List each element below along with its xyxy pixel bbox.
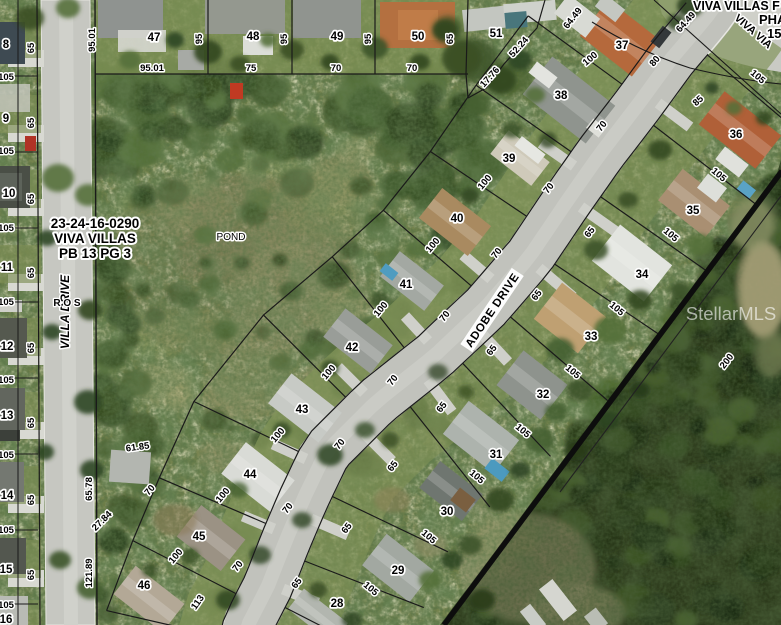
svg-text:15: 15 [0,564,13,576]
svg-text:13: 13 [1,410,14,422]
svg-text:105: 105 [0,223,15,234]
svg-text:VIVA VILLAS: VIVA VILLAS [54,231,136,246]
svg-text:95.01: 95.01 [140,63,164,74]
svg-text:34: 34 [636,269,649,281]
svg-text:10: 10 [3,188,16,200]
svg-text:65: 65 [26,267,37,278]
svg-text:36: 36 [730,129,743,141]
svg-text:48: 48 [247,31,260,43]
svg-text:95.01: 95.01 [87,27,98,51]
svg-text:105: 105 [0,450,15,461]
svg-text:31: 31 [490,449,503,461]
svg-text:105: 105 [0,525,15,536]
svg-text:PHA: PHA [759,12,781,27]
svg-text:9: 9 [3,113,9,125]
svg-text:VILLA DRIVE: VILLA DRIVE [58,274,72,349]
svg-text:70: 70 [331,63,342,74]
svg-text:45: 45 [193,531,206,543]
svg-text:65: 65 [445,33,456,44]
svg-text:39: 39 [503,153,516,165]
svg-text:70: 70 [407,63,418,74]
svg-text:105: 105 [0,375,15,386]
svg-text:44: 44 [244,469,257,481]
svg-text:38: 38 [555,90,568,102]
svg-text:65: 65 [26,342,37,353]
svg-text:33: 33 [585,331,598,343]
svg-text:8: 8 [3,39,10,51]
svg-text:32: 32 [537,389,550,401]
svg-text:43: 43 [296,404,309,416]
svg-text:PB 13 PG 3: PB 13 PG 3 [59,246,132,261]
svg-text:65: 65 [26,417,37,428]
svg-text:11: 11 [1,262,14,274]
svg-text:105: 105 [0,297,15,308]
svg-text:65.78: 65.78 [84,477,95,501]
svg-text:40: 40 [451,213,464,225]
svg-text:12: 12 [1,341,14,353]
svg-text:16: 16 [0,614,12,625]
svg-text:14: 14 [1,490,14,502]
svg-text:StellarMLS: StellarMLS [686,303,776,324]
svg-text:50: 50 [412,31,425,43]
svg-text:R O S: R O S [53,298,81,309]
svg-text:37: 37 [616,40,629,52]
svg-text:41: 41 [400,279,413,291]
svg-text:28: 28 [331,598,344,610]
svg-text:65: 65 [26,494,37,505]
svg-text:121.89: 121.89 [84,558,95,587]
svg-text:95: 95 [363,33,374,44]
svg-text:42: 42 [346,342,359,354]
svg-text:POND: POND [217,232,246,243]
svg-text:46: 46 [138,580,151,592]
svg-text:47: 47 [148,32,161,44]
svg-text:105: 105 [0,72,15,83]
svg-text:65: 65 [26,193,37,204]
svg-text:75: 75 [246,63,257,74]
svg-text:65: 65 [26,42,37,53]
svg-text:105: 105 [0,600,15,611]
svg-text:105: 105 [0,146,15,157]
svg-text:49: 49 [331,31,344,43]
svg-text:23-24-16-0290: 23-24-16-0290 [51,216,140,231]
svg-text:35: 35 [687,205,700,217]
svg-text:51: 51 [490,28,503,40]
svg-text:65: 65 [26,117,37,128]
svg-text:95: 95 [194,33,205,44]
svg-text:29: 29 [392,565,405,577]
svg-text:30: 30 [441,506,454,518]
svg-text:65: 65 [26,569,37,580]
svg-text:95: 95 [279,33,290,44]
